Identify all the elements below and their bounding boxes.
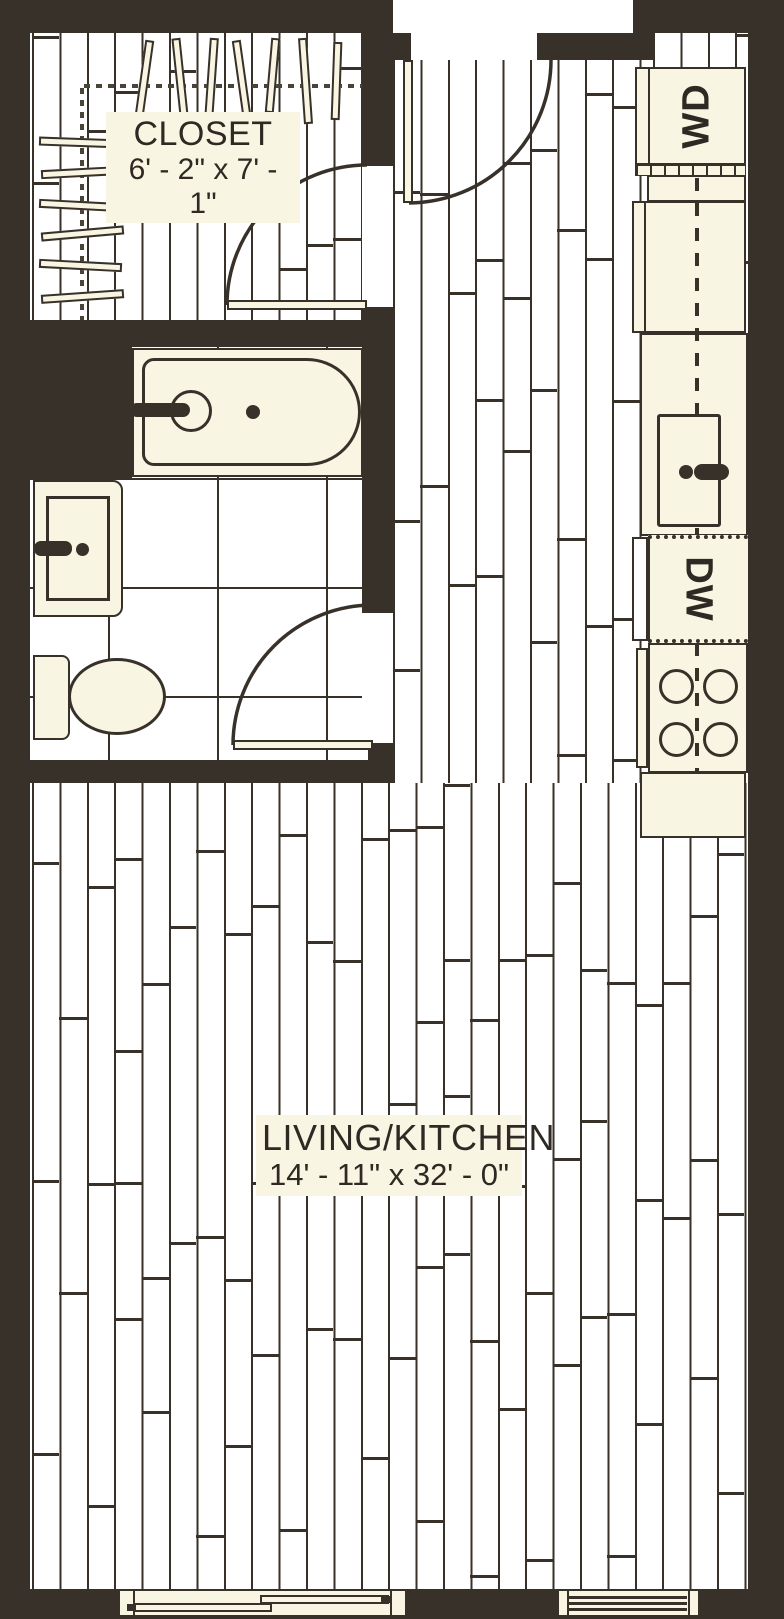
living-kitchen-dimensions: 14' - 11" x 32' - 0" [262,1158,516,1193]
closet-label: CLOSET [112,115,294,153]
washer-dryer-label: WD [676,83,719,148]
floor-plank-joint [503,297,530,300]
floor-plank-joint [114,1182,141,1185]
dishwasher-side-strip [632,537,648,641]
floor-plank-joint [475,399,502,402]
floor-plank-joint [662,1217,689,1220]
floor-plank-joint [553,882,580,885]
floor-plank-joint [224,933,251,936]
floor-plank-joint [416,1520,443,1523]
floor-plank-joint [475,259,502,262]
kitchen-sink-faucet [694,464,729,480]
floor-plank-joint [580,969,607,972]
stove-burner [703,669,738,704]
stove-burner [659,722,694,757]
floor-plank-joint [662,982,689,985]
entry-wall-right [537,33,653,60]
closet-label-block: CLOSET 6' - 2" x 7' - 1" [106,112,300,223]
window-glazing-line [569,1596,687,1599]
floor-plank-joint [420,193,447,196]
floor-plank-joint [585,258,612,261]
floor-plank-joint [498,959,525,962]
floor-plank-joint [279,834,306,837]
dishwasher-label: DW [677,556,720,621]
toilet-bowl [68,658,166,735]
wall-right [748,0,784,1619]
floor-plank-joint [306,244,333,247]
floor-plank-joint [735,34,748,37]
closet-door-leaf [227,300,367,310]
window-cap-right [688,1590,699,1615]
floor-plank-joint [635,1004,662,1007]
floor-plank-joint [279,268,306,271]
floor-plank-joint [32,182,59,185]
floor-plank-joint [525,1559,552,1562]
sliding-door-panel-bottom [134,1603,272,1612]
floor-plank-joint [32,1180,59,1183]
laundry-nook-floor [653,33,748,67]
window-glazing-line [569,1608,687,1611]
floor-plank-joint [251,905,278,908]
window-cap-left [558,1590,569,1615]
floor-plank-joint [557,754,584,757]
floor-plank-joint [690,915,717,918]
wall-closet-right [362,0,393,166]
sliding-door-panel-top [260,1595,389,1604]
floor-plank-joint [553,1364,580,1367]
floor-plank-joint [612,400,639,403]
sliding-door-cap-left [119,1590,135,1615]
floor-plank-joint [59,1017,86,1020]
floor-plank-joint [224,1279,251,1282]
kitchen-sink-handle-dot [679,465,693,479]
floor-plank-joint [169,926,196,929]
stove-burner [703,722,738,757]
floor-plank-joint [142,983,169,986]
floor-plank-joint [717,1492,744,1495]
floor-plank-joint [503,450,530,453]
floor-plank-joint [607,982,634,985]
bathroom-door-leaf [233,740,373,750]
floor-plank-joint [530,389,557,392]
wall-bathroom-right [362,347,393,613]
floor-plank-joint [690,1159,717,1162]
wall-plumbing-mass [30,345,132,480]
entry-door-leaf [403,60,413,203]
floor-plank-joint [475,575,502,578]
washer-dryer-face-line [648,69,650,163]
floor-plank-joint [142,1277,169,1280]
floor-plank-joint [717,853,744,856]
floor-plank-joint [503,162,530,165]
floor-plank-joint [416,1266,443,1269]
floor-plank-joint [585,625,612,628]
floor-plank-joint [607,1313,634,1316]
floor-plank-joint [388,829,415,832]
floor-plank-joint [306,1328,333,1331]
vanity-faucet [34,541,72,556]
floor-plank-joint [607,1555,634,1558]
floor-plank-joint [557,229,584,232]
floor-plank-joint [114,1050,141,1053]
entry-door-jamb-left [392,33,411,60]
refrigerator [632,201,746,333]
vanity-handle-dot [76,543,89,556]
floor-plank-joint [717,1213,744,1216]
floor-plank-joint [279,1529,306,1532]
floor-plank-joint [530,149,557,152]
wall-closet-bathroom [30,320,393,347]
window-glazing-line [569,1602,687,1605]
floor-plank-joint [32,862,59,865]
floor-plank-joint [87,1505,114,1508]
floor-plank-joint [416,826,443,829]
floor-plank-joint [333,1338,360,1341]
wall-bathroom-bottom [0,760,393,783]
floor-plank-joint [525,954,552,957]
floor-plank-joint [196,850,223,853]
floor-plank-joint [580,1120,607,1123]
wall-left [0,0,30,1619]
floor-plank-joint [333,238,360,241]
floor-plank-joint [32,36,59,39]
floor-plank-joint [251,1354,278,1357]
living-kitchen-label: LIVING/KITCHEN [262,1118,516,1158]
floor-plank-joint [361,838,388,841]
floor-plank-joint [443,1253,470,1256]
sliding-door-cap-right [390,1590,406,1615]
stove-side-strip [636,648,648,768]
toilet-tank [33,655,70,740]
floor-plank-joint [470,1019,497,1022]
wall-top-left [0,0,392,33]
floor-plank-joint [420,485,447,488]
floor-plank-joint [690,1377,717,1380]
floor-plank-joint [169,1242,196,1245]
sliding-glass-door [118,1589,407,1617]
counter-lower [640,772,746,838]
floor-plank-joint [557,538,584,541]
floor-plank-joint [416,1021,443,1024]
stove-burner [659,669,694,704]
floor-plank-joint [87,1183,114,1186]
floor-plank-joint [470,1340,497,1343]
floor-plank-joint [32,1453,59,1456]
floor-plank-joint [530,641,557,644]
bathtub-handle-dot [246,405,260,419]
sliding-door-stop [127,1604,136,1611]
floor-plank-joint [470,1575,497,1578]
sliding-door-stop [381,1596,390,1603]
living-kitchen-label-block: LIVING/KITCHEN 14' - 11" x 32' - 0" [256,1115,522,1196]
floor-plank-joint [635,1199,662,1202]
floor-plank-joint [87,886,114,889]
floor-plank-joint [224,1445,251,1448]
floor-plank-joint [525,1292,552,1295]
floor-plank-joint [443,959,470,962]
closet-rod-line-horizontal [84,84,372,88]
floor-plank-joint [59,1292,86,1295]
floor-plank-joint [448,292,475,295]
floor-plank-joint [635,1423,662,1426]
floor-plan-canvas: WD DW CLOSET 6' - 2" x 7' - 1" LIVING/KI… [0,0,784,1619]
refrigerator-face-line [644,203,646,331]
living-window [557,1589,700,1617]
floor-plank-joint [114,1318,141,1321]
floor-plank-joint [393,669,420,672]
floor-plank-joint [393,520,420,523]
bathtub-faucet [130,403,190,417]
closet-dimensions: 6' - 2" x 7' - 1" [112,153,294,220]
floor-plank-joint [553,1158,580,1161]
floor-plank-joint [361,1457,388,1460]
floor-plank-joint [443,1095,470,1098]
floor-plank-joint [585,93,612,96]
floor-plank-joint [498,1408,525,1411]
floor-plank-joint [142,1411,169,1414]
floor-plank-joint [388,1103,415,1106]
floor-plank-joint [388,1357,415,1360]
floor-plank-joint [306,941,333,944]
floor-plank-joint [580,1316,607,1319]
floor-plank-joint [114,858,141,861]
floor-plank-joint [196,1236,223,1239]
floor-plank-joint [333,960,360,963]
floor-plank-joint [443,784,470,787]
floor-plank-joint [196,1535,223,1538]
floor-plank-joint [448,584,475,587]
